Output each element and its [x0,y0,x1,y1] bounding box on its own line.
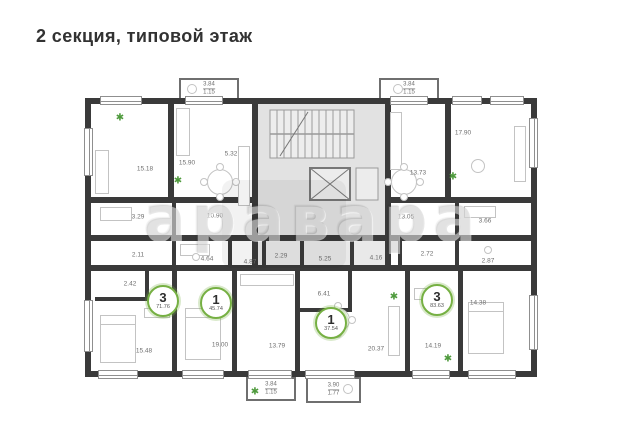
balcony-area-label: 3.841.15 [203,81,215,96]
window [412,370,450,379]
floor-plan: аравара 3.841.153.841.153.841.153.901.77… [0,0,622,440]
room-area-label: 2.11 [132,252,144,259]
room-area-label: 14.38 [470,300,486,307]
furniture-round-icon [348,316,356,324]
window [305,370,355,379]
wall-segment [348,271,352,312]
window [84,300,93,352]
plant-icon: ✱ [390,292,398,303]
apartment-badge[interactable]: 137.54 [315,307,347,339]
apartment-total-area: 45.74 [209,307,223,313]
apartment-rooms-count: 3 [159,291,166,304]
apartment-total-area: 37.54 [324,327,338,333]
balcony-area-label: 3.841.15 [265,381,277,396]
wall-segment [172,271,177,371]
balcony-area-label: 3.901.77 [328,382,340,397]
window [529,118,538,168]
window [182,370,224,379]
furniture-icon [240,274,294,286]
window [100,96,142,105]
furniture-icon [390,112,402,170]
wall-segment [295,271,300,371]
furniture-icon [514,126,526,182]
window [452,96,482,105]
plant-icon: ✱ [174,176,182,187]
apartment-badge[interactable]: 371.76 [147,285,179,317]
wall-segment [232,271,237,371]
room-area-label: 5.32 [225,151,238,158]
furniture-round-icon [471,159,485,173]
wall-segment [458,271,463,371]
apartment-badge[interactable]: 383.63 [421,284,453,316]
window [468,370,516,379]
room-area-label: 13.79 [269,343,285,350]
window [98,370,138,379]
furniture-icon [100,315,136,325]
plant-icon: ✱ [444,354,452,365]
apartment-total-area: 71.76 [156,305,170,311]
plant-icon: ✱ [251,387,259,398]
window [490,96,524,105]
balcony-area-label: 3.841.15 [403,81,415,96]
floor-plan-page: 2 секция, типовой этаж аравара 3. [0,0,622,440]
room-area-label: 6.41 [318,291,331,298]
furniture-icon [176,108,190,156]
room-area-label: 20.37 [368,346,384,353]
furniture-round-icon [393,84,403,94]
furniture-round-icon [400,163,408,171]
room-area-label: 4.16 [370,255,383,262]
apartment-rooms-count: 1 [212,293,219,306]
window [185,96,223,105]
room-area-label: 2.42 [124,281,137,288]
room-area-label: 15.48 [136,348,152,355]
window [529,295,538,350]
window [84,128,93,176]
room-area-label: 15.18 [137,166,153,173]
plant-icon: ✱ [449,172,457,183]
room-area-label: 15.90 [179,160,195,167]
apartment-total-area: 83.63 [430,304,444,310]
furniture-icon [388,306,400,356]
apartment-badge[interactable]: 145.74 [200,287,232,319]
window [248,370,292,379]
room-area-label: 13.73 [410,170,426,177]
window [390,96,428,105]
room-area-label: 17.90 [455,130,471,137]
wall-segment [405,271,410,371]
room-area-label: 14.19 [425,343,441,350]
furniture-round-icon [216,163,224,171]
watermark: аравара [90,188,535,250]
apartment-rooms-count: 1 [327,313,334,326]
room-area-label: 2.87 [482,258,495,265]
furniture-round-icon [343,384,353,394]
apartment-rooms-count: 3 [433,290,440,303]
room-area-label: 19.00 [212,342,228,349]
room-area-label: 4.64 [201,256,214,263]
plant-icon: ✱ [116,113,124,124]
furniture-round-icon [187,84,197,94]
